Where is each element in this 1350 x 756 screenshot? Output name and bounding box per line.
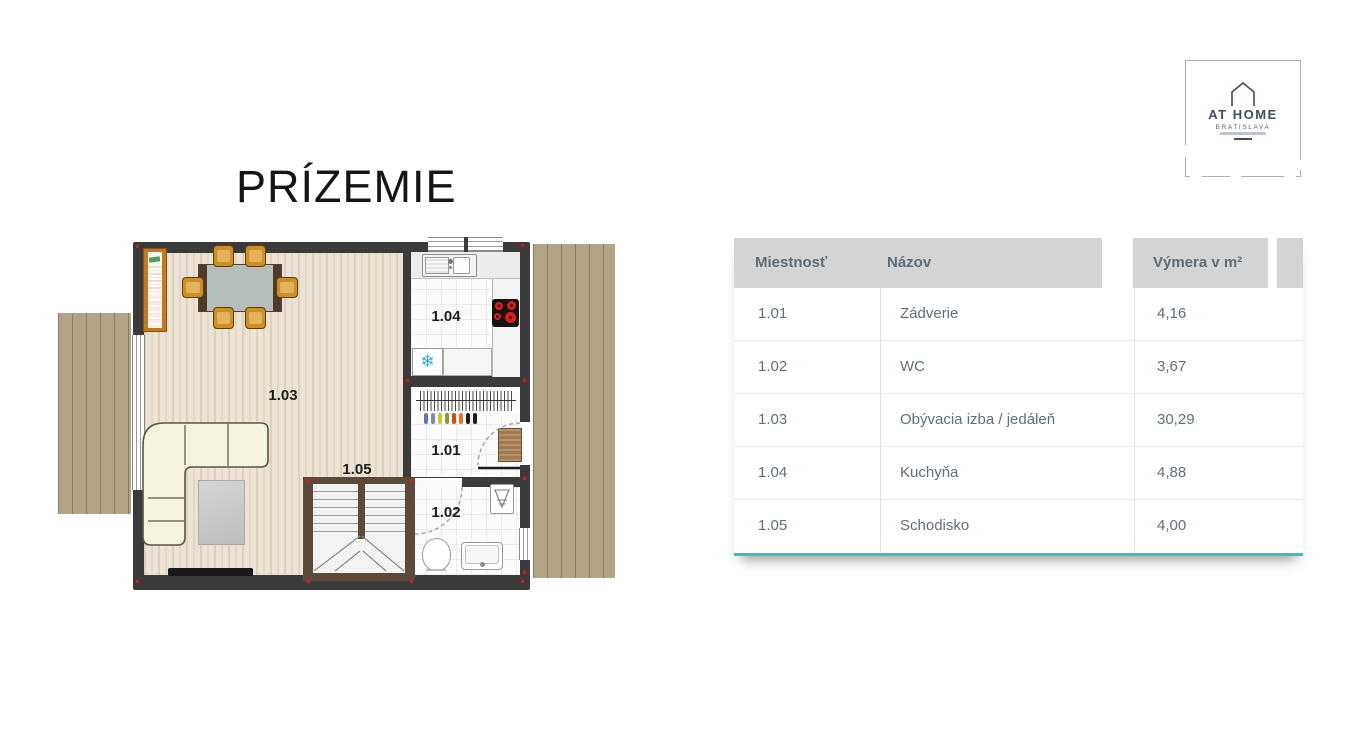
room-area: 3,67: [1157, 341, 1186, 393]
faucet-icon: [480, 562, 485, 567]
room-name: Obývacia izba / jedáleň: [900, 394, 1055, 446]
column-header-vymera: Výmera v m²: [1153, 238, 1242, 288]
table-row: 1.03 Obývacia izba / jedáleň 30,29: [734, 394, 1303, 447]
logo-border-gap: [1299, 160, 1301, 170]
kitchen-counter-lower: [443, 348, 492, 376]
wardrobe: [413, 387, 520, 415]
room-id: 1.01: [758, 288, 787, 340]
wc-door-opening: [415, 478, 462, 487]
header-segment: [1277, 238, 1303, 288]
corner-marker: [136, 580, 139, 583]
dining-table: [198, 264, 282, 312]
logo: AT HOME BRATISLAVA: [1185, 60, 1301, 177]
room-id: 1.04: [758, 447, 787, 499]
shoes-icon: [424, 413, 477, 424]
corner-marker: [521, 580, 524, 583]
sink-basin: [453, 257, 470, 274]
corner-marker: [307, 580, 310, 583]
books: [148, 252, 162, 328]
dining-chair: [276, 277, 298, 298]
corner-marker: [406, 379, 409, 382]
page-title: PRÍZEMIE: [236, 164, 457, 209]
column-header-miestnost: Miestnosť: [755, 238, 827, 288]
corner-marker: [307, 479, 310, 482]
living-window: [132, 335, 145, 490]
corner-marker: [523, 571, 526, 574]
room-area: 4,88: [1157, 447, 1186, 499]
page: { "page": { "title": "PRÍZEMIE" }, "logo…: [0, 0, 1350, 756]
table-row: 1.02 WC 3,67: [734, 341, 1303, 394]
terrace-left: [58, 313, 131, 514]
sink-basin: [425, 257, 449, 274]
burner-icon: [494, 313, 501, 320]
room-name: Schodisko: [900, 500, 969, 552]
table-row: 1.04 Kuchyňa 4,88: [734, 447, 1303, 500]
room-id: 1.03: [758, 394, 787, 446]
table-row: 1.01 Zádverie 4,16: [734, 288, 1303, 341]
room-area: 4,00: [1157, 500, 1186, 552]
room-area: 4,16: [1157, 288, 1186, 340]
dining-chair: [182, 277, 204, 298]
doormat: [498, 428, 522, 462]
table-accent-bar: [734, 553, 1303, 556]
toilet-base: [426, 569, 446, 571]
house-icon: [1225, 81, 1261, 107]
logo-fineprint: [1220, 132, 1266, 135]
floor-plan: ❄ 1.03 1.04 1.05 1.01: [58, 235, 615, 591]
logo-border-gap: [1190, 175, 1202, 177]
kitchen-window-divider: [464, 237, 468, 252]
terrace-right: [533, 244, 615, 578]
room-name: Zádverie: [900, 288, 958, 340]
corner-marker: [523, 477, 526, 480]
logo-name: AT HOME: [1186, 107, 1300, 122]
corner-marker: [136, 245, 139, 248]
table-body: 1.01 Zádverie 4,16 1.02 WC 3,67 1.03 Obý…: [734, 288, 1303, 553]
dining-chair: [213, 307, 234, 329]
fridge-snowflake-icon: ❄: [420, 352, 434, 371]
room-label-1-04: 1.04: [421, 308, 471, 325]
toilet: [422, 538, 451, 571]
book-stack: [148, 296, 162, 326]
dining-chair: [245, 307, 266, 329]
room-id: 1.02: [758, 341, 787, 393]
wc-window: [519, 528, 531, 560]
room-name: WC: [900, 341, 925, 393]
room-label-1-05: 1.05: [332, 461, 382, 478]
stove: [492, 299, 519, 327]
logo-border-gap: [1284, 175, 1296, 177]
book-stack: [148, 266, 162, 292]
faucet-icon: [449, 266, 452, 269]
logo-underline: [1234, 138, 1252, 140]
burner-icon: [507, 301, 516, 310]
corner-marker: [521, 244, 524, 247]
stairs-steps-right: [365, 484, 405, 536]
logo-subtitle: BRATISLAVA: [1186, 124, 1300, 131]
kitchen-sink: [422, 254, 477, 277]
hangers-icon: [420, 391, 512, 411]
logo-border-gap: [1185, 145, 1187, 157]
room-name: Kuchyňa: [900, 447, 958, 499]
dining-chair: [245, 245, 266, 267]
corner-marker: [410, 580, 413, 583]
rug: [198, 480, 245, 545]
washbasin: [461, 542, 503, 570]
fridge: ❄: [412, 348, 443, 376]
stairs-steps-left: [313, 484, 358, 536]
burner-icon: [505, 312, 516, 323]
faucet-icon: [448, 259, 453, 264]
burner-icon: [495, 302, 503, 310]
bookshelf: [143, 248, 167, 332]
wc-hamper: [490, 484, 514, 514]
table-row: 1.05 Schodisko 4,00: [734, 500, 1303, 553]
kitchen-counter-right: [492, 279, 520, 377]
room-area: 30,29: [1157, 394, 1195, 446]
book: [149, 256, 161, 262]
room-table: Miestnosť Názov Výmera v m² 1.01 Zádveri…: [734, 238, 1303, 556]
room-id: 1.05: [758, 500, 787, 552]
logo-border-gap: [1230, 175, 1241, 177]
tv: [168, 568, 253, 576]
dining-chair: [213, 245, 234, 267]
table-header: Miestnosť Názov Výmera v m²: [734, 238, 1303, 288]
stairs-stringer: [358, 484, 365, 539]
corner-marker: [523, 379, 526, 382]
wardrobe-rail: [416, 400, 516, 401]
room-label-1-02: 1.02: [421, 504, 471, 521]
kitchen-bottom-wall: [403, 376, 520, 387]
corner-marker: [410, 479, 413, 482]
room-label-1-01: 1.01: [421, 442, 471, 459]
column-header-nazov: Názov: [887, 238, 931, 288]
room-label-1-03: 1.03: [258, 387, 308, 404]
